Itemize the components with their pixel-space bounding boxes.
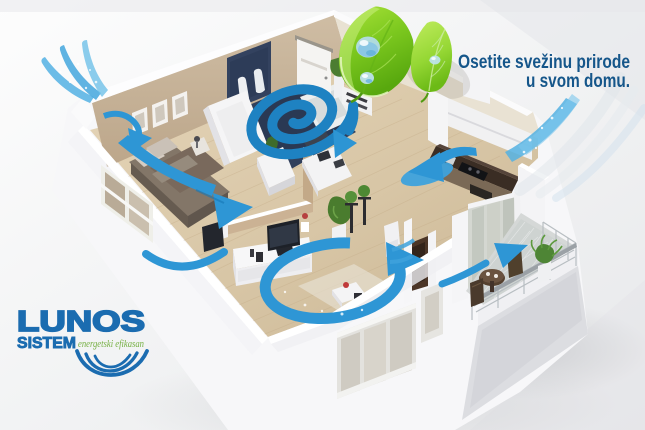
- svg-text:energetski efikasan: energetski efikasan: [78, 339, 144, 350]
- svg-text:LUNOS: LUNOS: [17, 306, 145, 338]
- svg-text:u svom domu.: u svom domu.: [526, 70, 630, 92]
- svg-text:SISTEM: SISTEM: [17, 335, 76, 352]
